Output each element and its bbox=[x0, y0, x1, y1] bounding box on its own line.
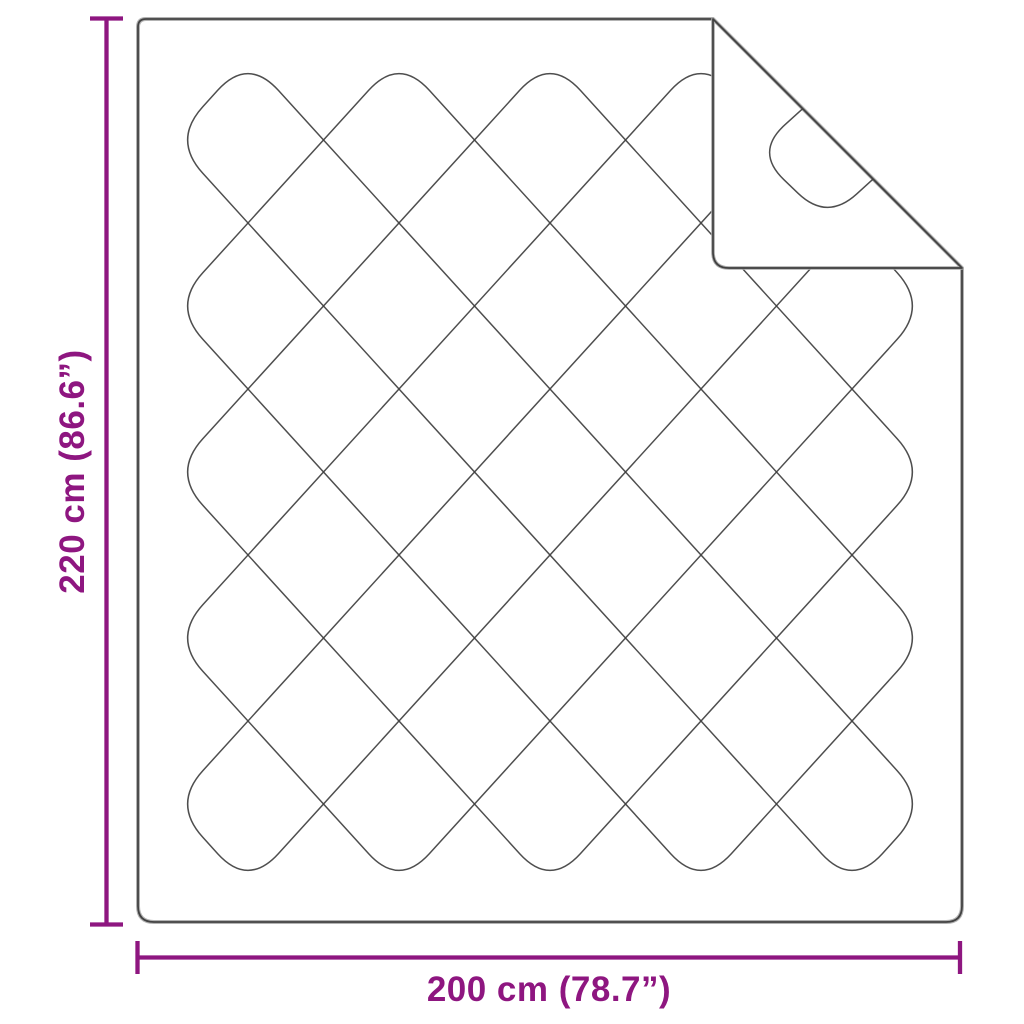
product-dimension-diagram: 220 cm (86.6”) 200 cm (78.7”) bbox=[0, 0, 1024, 1024]
width-dimension: 200 cm (78.7”) bbox=[137, 941, 961, 1009]
width-dimension-label: 200 cm (78.7”) bbox=[427, 970, 671, 1009]
blanket-diagram-canvas: 220 cm (86.6”) 200 cm (78.7”) bbox=[0, 0, 1024, 1024]
height-dimension: 220 cm (86.6”) bbox=[53, 18, 123, 925]
height-dimension-label: 220 cm (86.6”) bbox=[53, 349, 92, 593]
